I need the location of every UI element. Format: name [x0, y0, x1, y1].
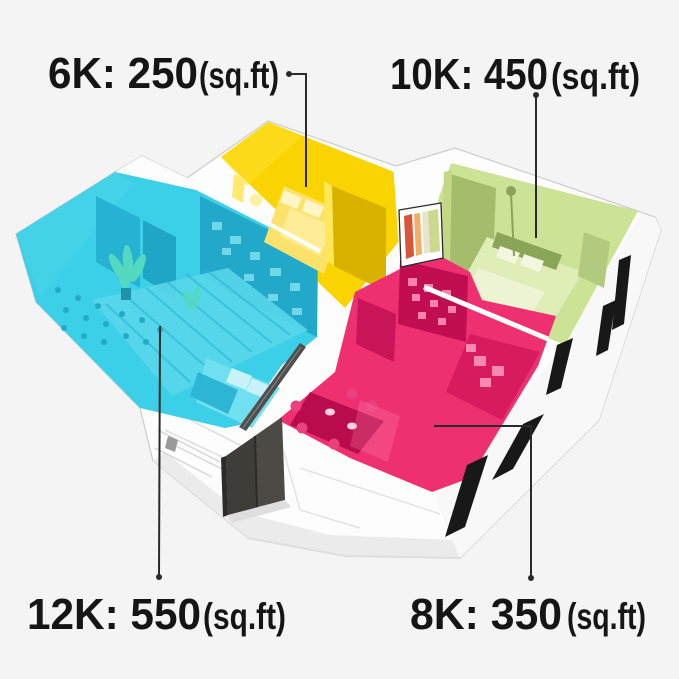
svg-text:12K: 550: 12K: 550	[27, 590, 201, 639]
svg-text:6K: 250: 6K: 250	[48, 49, 198, 98]
svg-text:8K: 350: 8K: 350	[410, 590, 562, 639]
svg-text:10K: 450: 10K: 450	[390, 50, 548, 99]
svg-text:(sq.ft): (sq.ft)	[551, 56, 640, 97]
svg-text:(sq.ft): (sq.ft)	[567, 596, 646, 637]
svg-text:(sq.ft): (sq.ft)	[199, 55, 279, 96]
svg-text:(sq.ft): (sq.ft)	[203, 596, 286, 637]
